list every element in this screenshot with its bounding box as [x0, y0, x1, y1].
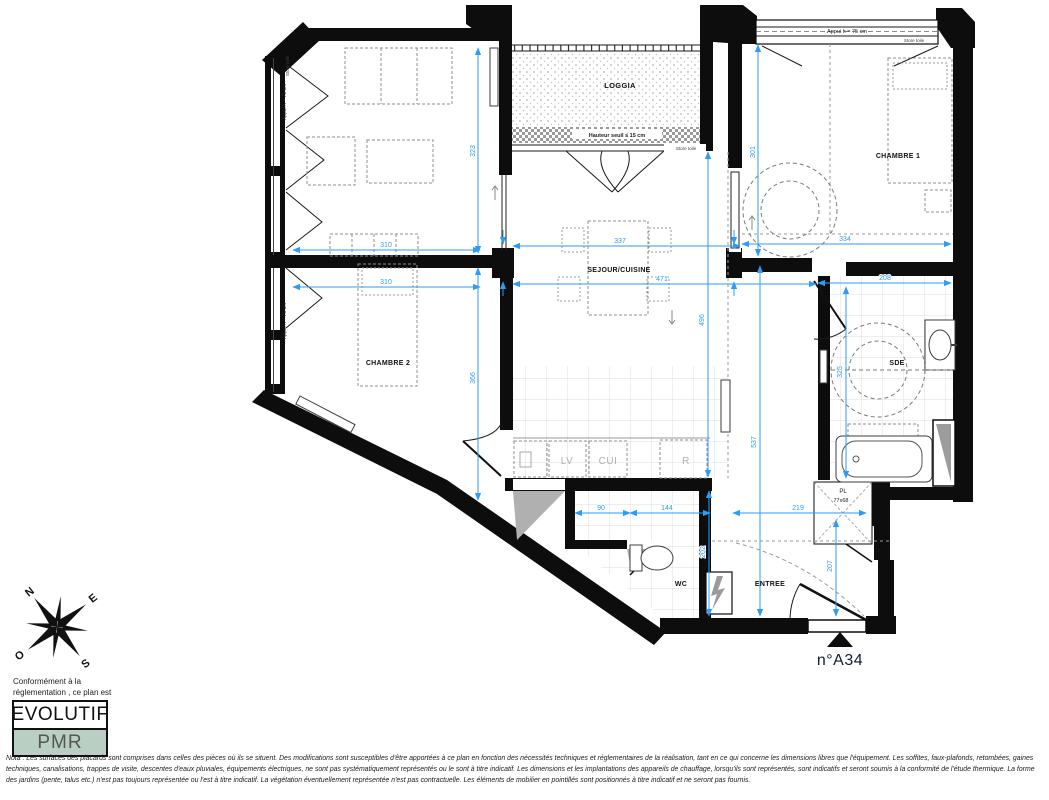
plan-type-legend: EVOLUTIF PMR	[12, 700, 108, 757]
dim-entree-height: 207	[827, 560, 834, 572]
duct-niche	[933, 420, 955, 486]
seuil-note: Hauteur seuil ≤ 15 cm	[589, 133, 646, 139]
dim-sejour-width-top: 337	[614, 238, 626, 245]
dim-hall-height: 202	[700, 546, 707, 558]
dim-hall-w2: 144	[661, 505, 673, 512]
radiator	[721, 380, 730, 432]
fridge-label: R	[682, 456, 690, 467]
placard-size-label: 77x68	[834, 498, 849, 504]
entrance-arrow-icon	[827, 632, 853, 647]
loggia-label: LOGGIA	[604, 81, 636, 90]
store-note-top: Store toile	[904, 38, 925, 43]
dim-entree-width: 219	[792, 505, 804, 512]
dim-room1-width: 310	[380, 242, 392, 249]
dim-sejour-width-mid: 471	[656, 276, 668, 283]
appui-note-left2: Appui h = 75 cm	[282, 303, 288, 339]
wc-label: WC	[675, 581, 687, 588]
entree-label: ENTREE	[755, 581, 785, 588]
bathtub	[836, 436, 932, 482]
floor-plan-sheet: LV CUI R 310 310	[0, 0, 1049, 800]
floor-plan: LV CUI R 310 310	[0, 0, 1049, 750]
placard-label: PL	[839, 489, 847, 495]
dishwasher-label: LV	[561, 456, 574, 467]
appui-note-left1: Appui h = 75 cm	[282, 84, 288, 120]
pmr-turning-circle	[743, 163, 837, 257]
radiator	[490, 48, 498, 106]
dim-sde-width: 208	[879, 275, 891, 282]
chambre2-label: CHAMBRE 2	[366, 360, 410, 367]
chambre1-label: CHAMBRE 1	[876, 153, 920, 160]
unit-number-group: n°A34	[817, 632, 863, 669]
dim-room1-height: 323	[470, 145, 477, 157]
compass-north: N	[23, 585, 37, 599]
compass-east: E	[87, 592, 100, 606]
dim-chambre2-height: 366	[470, 372, 477, 384]
dim-chambre1-height: 301	[750, 146, 757, 158]
loggia-floor	[512, 53, 700, 127]
sde-label: SDE	[889, 360, 904, 367]
conformity-note: Conformément à la réglementation , ce pl…	[13, 676, 111, 698]
unit-number: n°A34	[817, 652, 863, 669]
toilet-tank	[630, 545, 642, 571]
toilet-bowl	[641, 546, 673, 570]
store-note-loggia: Store toile	[676, 146, 697, 151]
dim-sde-height: 325	[837, 366, 844, 378]
dim-kitchen-height: 537	[751, 436, 758, 448]
electrical-panel	[706, 572, 732, 614]
evolutif-badge: EVOLUTIF	[14, 702, 106, 730]
sejour-label: SEJOUR/CUISINE	[587, 267, 650, 274]
dim-chambre1-width: 334	[839, 236, 851, 243]
store-note-left: Store toile	[285, 55, 290, 76]
conformity-line2: réglementation , ce plan est	[13, 687, 111, 698]
towel-radiator	[820, 350, 827, 383]
cooker-label: CUI	[599, 456, 618, 467]
compass-south: S	[79, 657, 92, 671]
pmr-badge: PMR	[14, 730, 106, 755]
dim-hall-w1: 90	[597, 505, 605, 512]
appui-note-top: Appui h = 75 cm	[827, 29, 867, 35]
conformity-line1: Conformément à la	[13, 676, 111, 687]
dim-chambre2-width: 310	[380, 279, 392, 286]
compass-west: O	[13, 648, 27, 663]
dim-sejour-height: 496	[699, 314, 706, 326]
nota-disclaimer: Nota : Les surfaces des placards sont co…	[6, 753, 1045, 786]
